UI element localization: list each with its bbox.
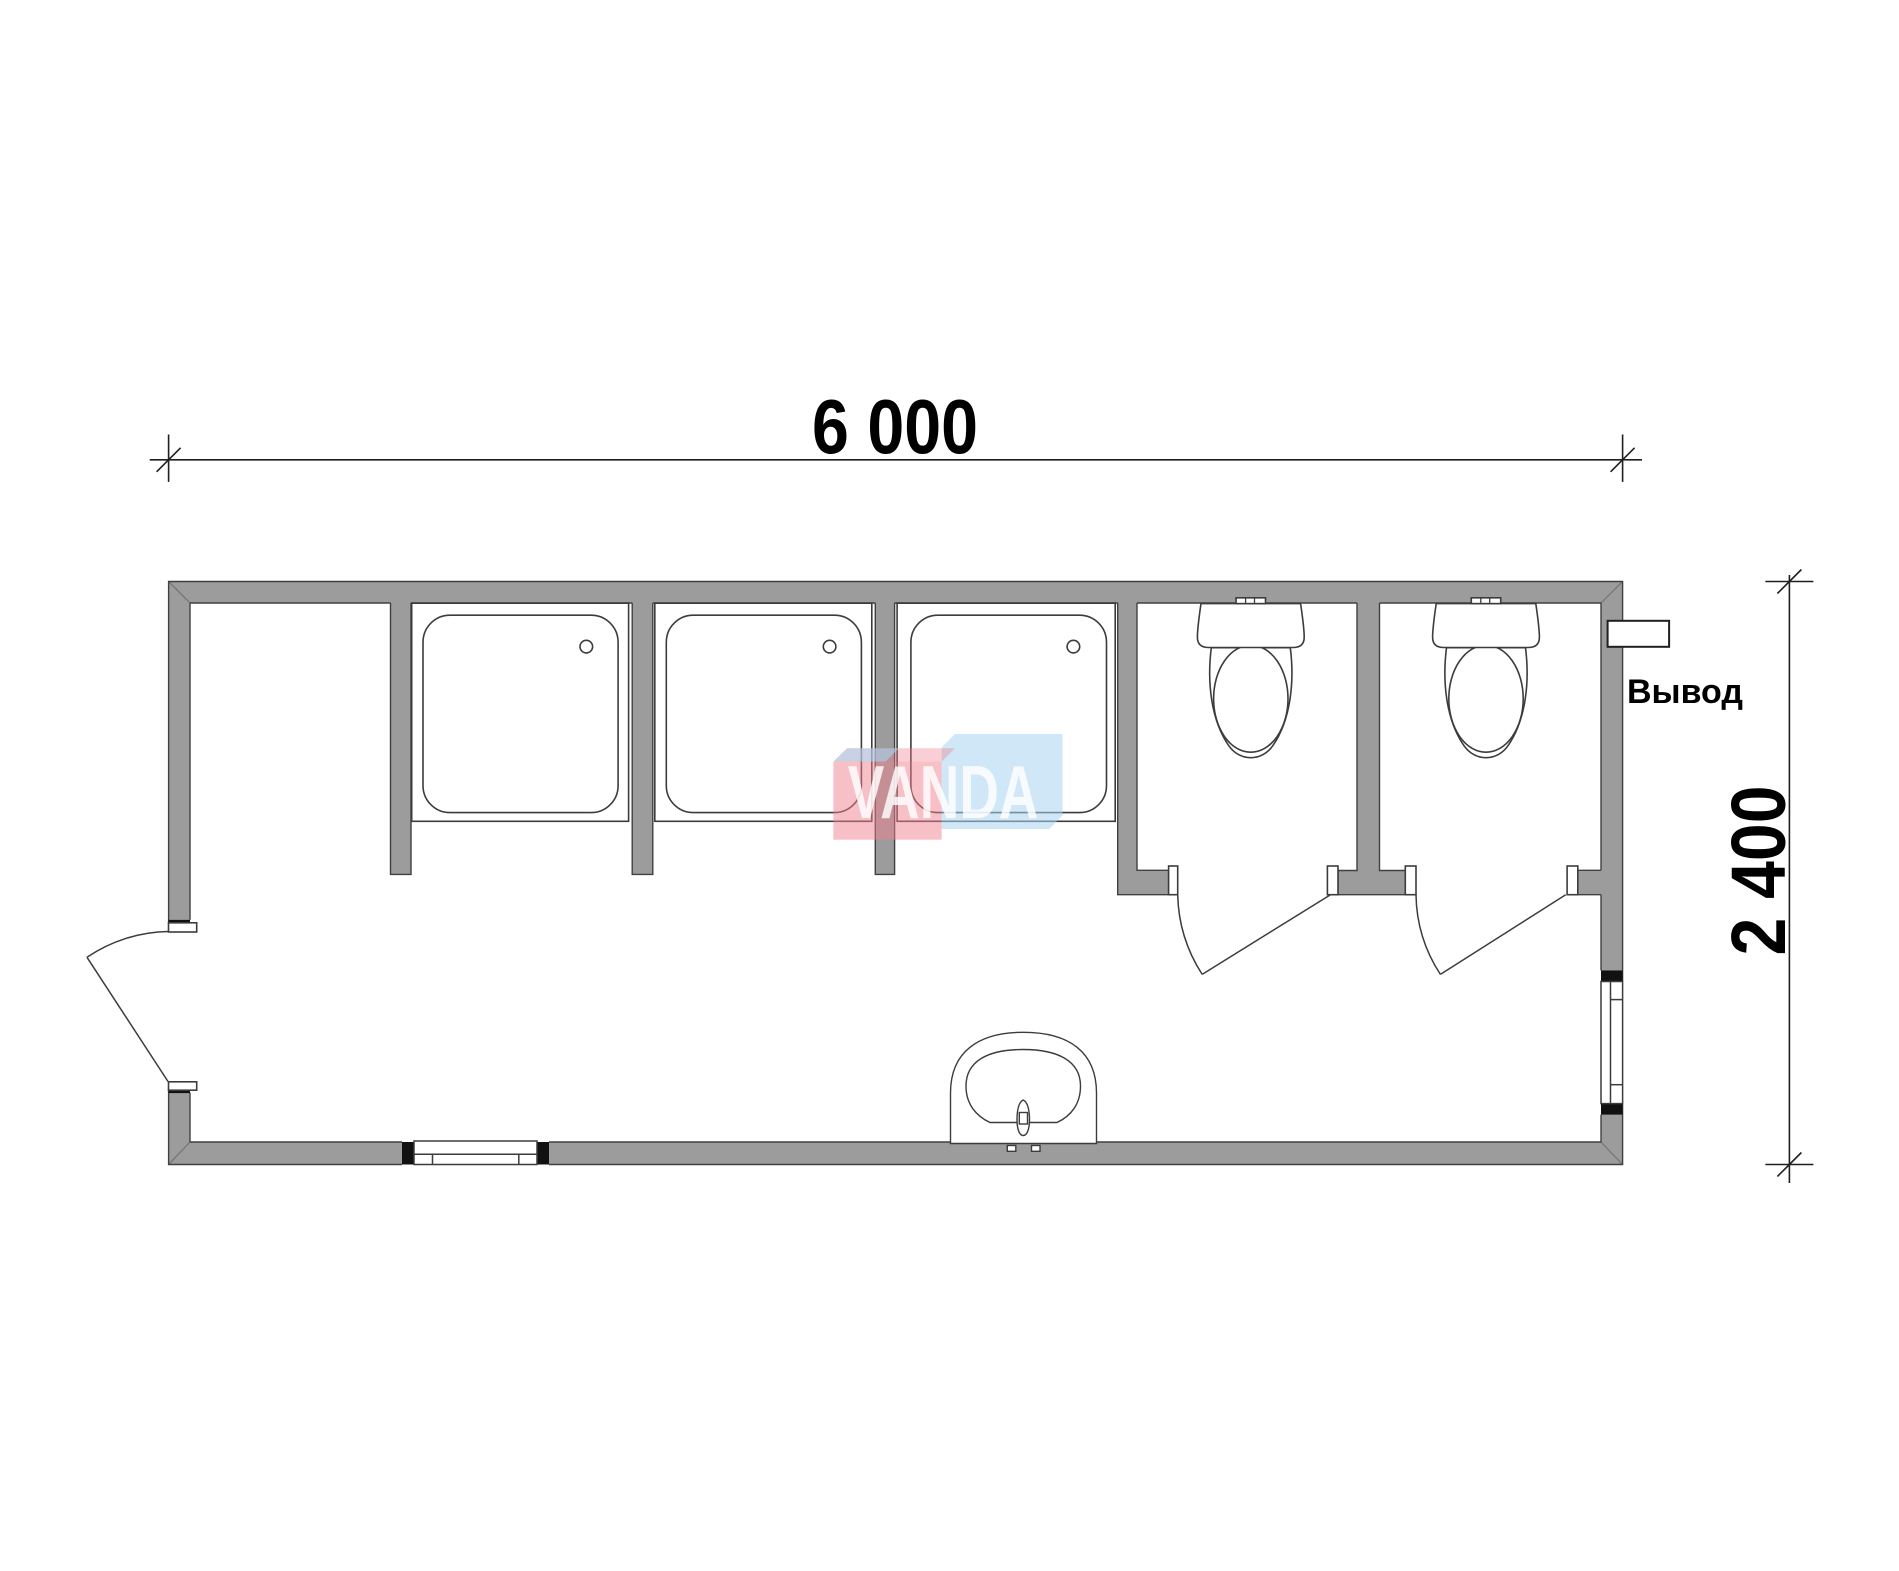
svg-text:VANDA: VANDA [848,751,1039,835]
svg-text:Вывод: Вывод [1627,673,1743,711]
svg-text:6 000: 6 000 [812,385,978,471]
svg-text:2 400: 2 400 [1716,786,1802,956]
